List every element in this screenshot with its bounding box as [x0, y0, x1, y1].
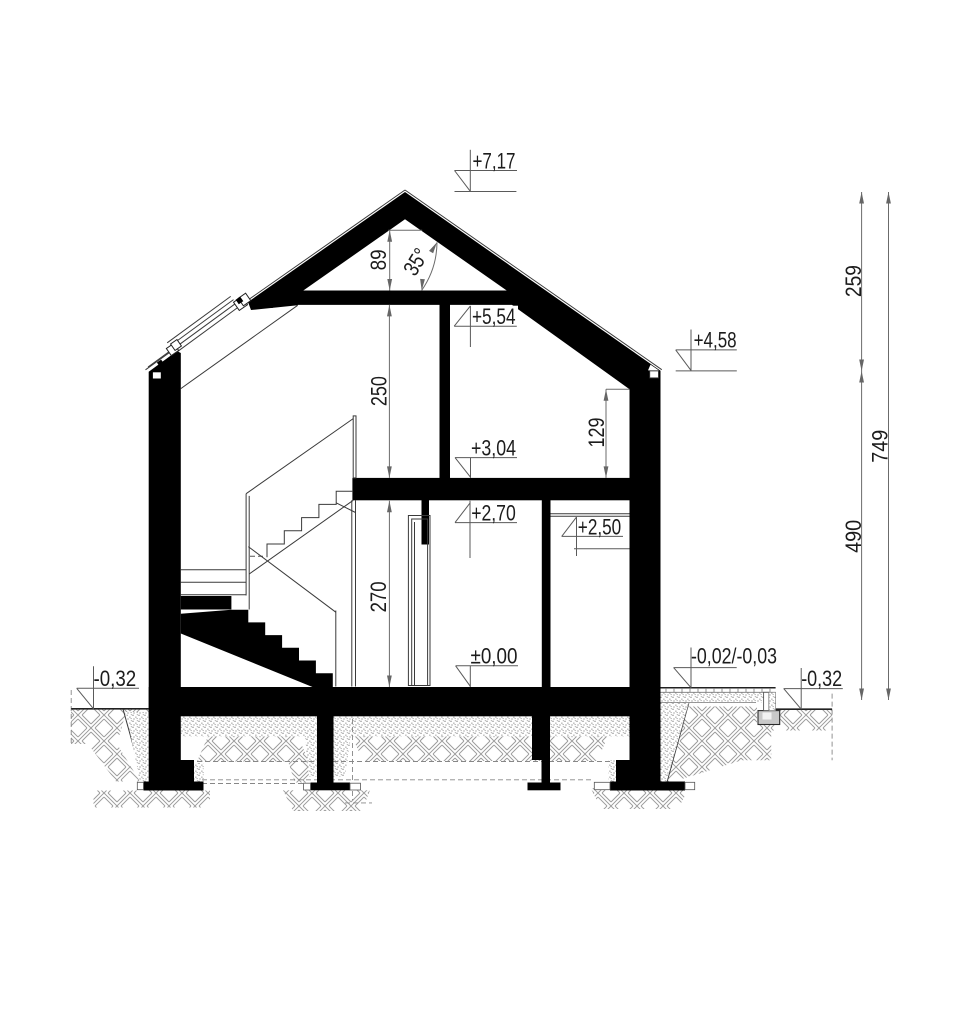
svg-text:250: 250	[366, 376, 391, 406]
svg-text:+2,70: +2,70	[471, 500, 516, 525]
svg-text:-0,32: -0,32	[801, 666, 842, 691]
svg-text:+5,54: +5,54	[472, 304, 516, 329]
svg-text:749: 749	[867, 430, 892, 463]
svg-text:+3,04: +3,04	[471, 435, 516, 460]
svg-text:270: 270	[366, 581, 391, 612]
svg-text:129: 129	[584, 418, 609, 448]
svg-text:-0,32: -0,32	[94, 666, 137, 691]
svg-text:+7,17: +7,17	[473, 148, 516, 173]
svg-text:+4,58: +4,58	[694, 328, 737, 353]
svg-text:259: 259	[841, 265, 866, 297]
svg-text:490: 490	[841, 520, 866, 553]
svg-text:±0,00: ±0,00	[471, 644, 518, 669]
svg-text:+2,50: +2,50	[578, 515, 621, 540]
svg-text:-0,02/-0,03: -0,02/-0,03	[691, 643, 777, 668]
svg-text:89: 89	[366, 249, 391, 270]
